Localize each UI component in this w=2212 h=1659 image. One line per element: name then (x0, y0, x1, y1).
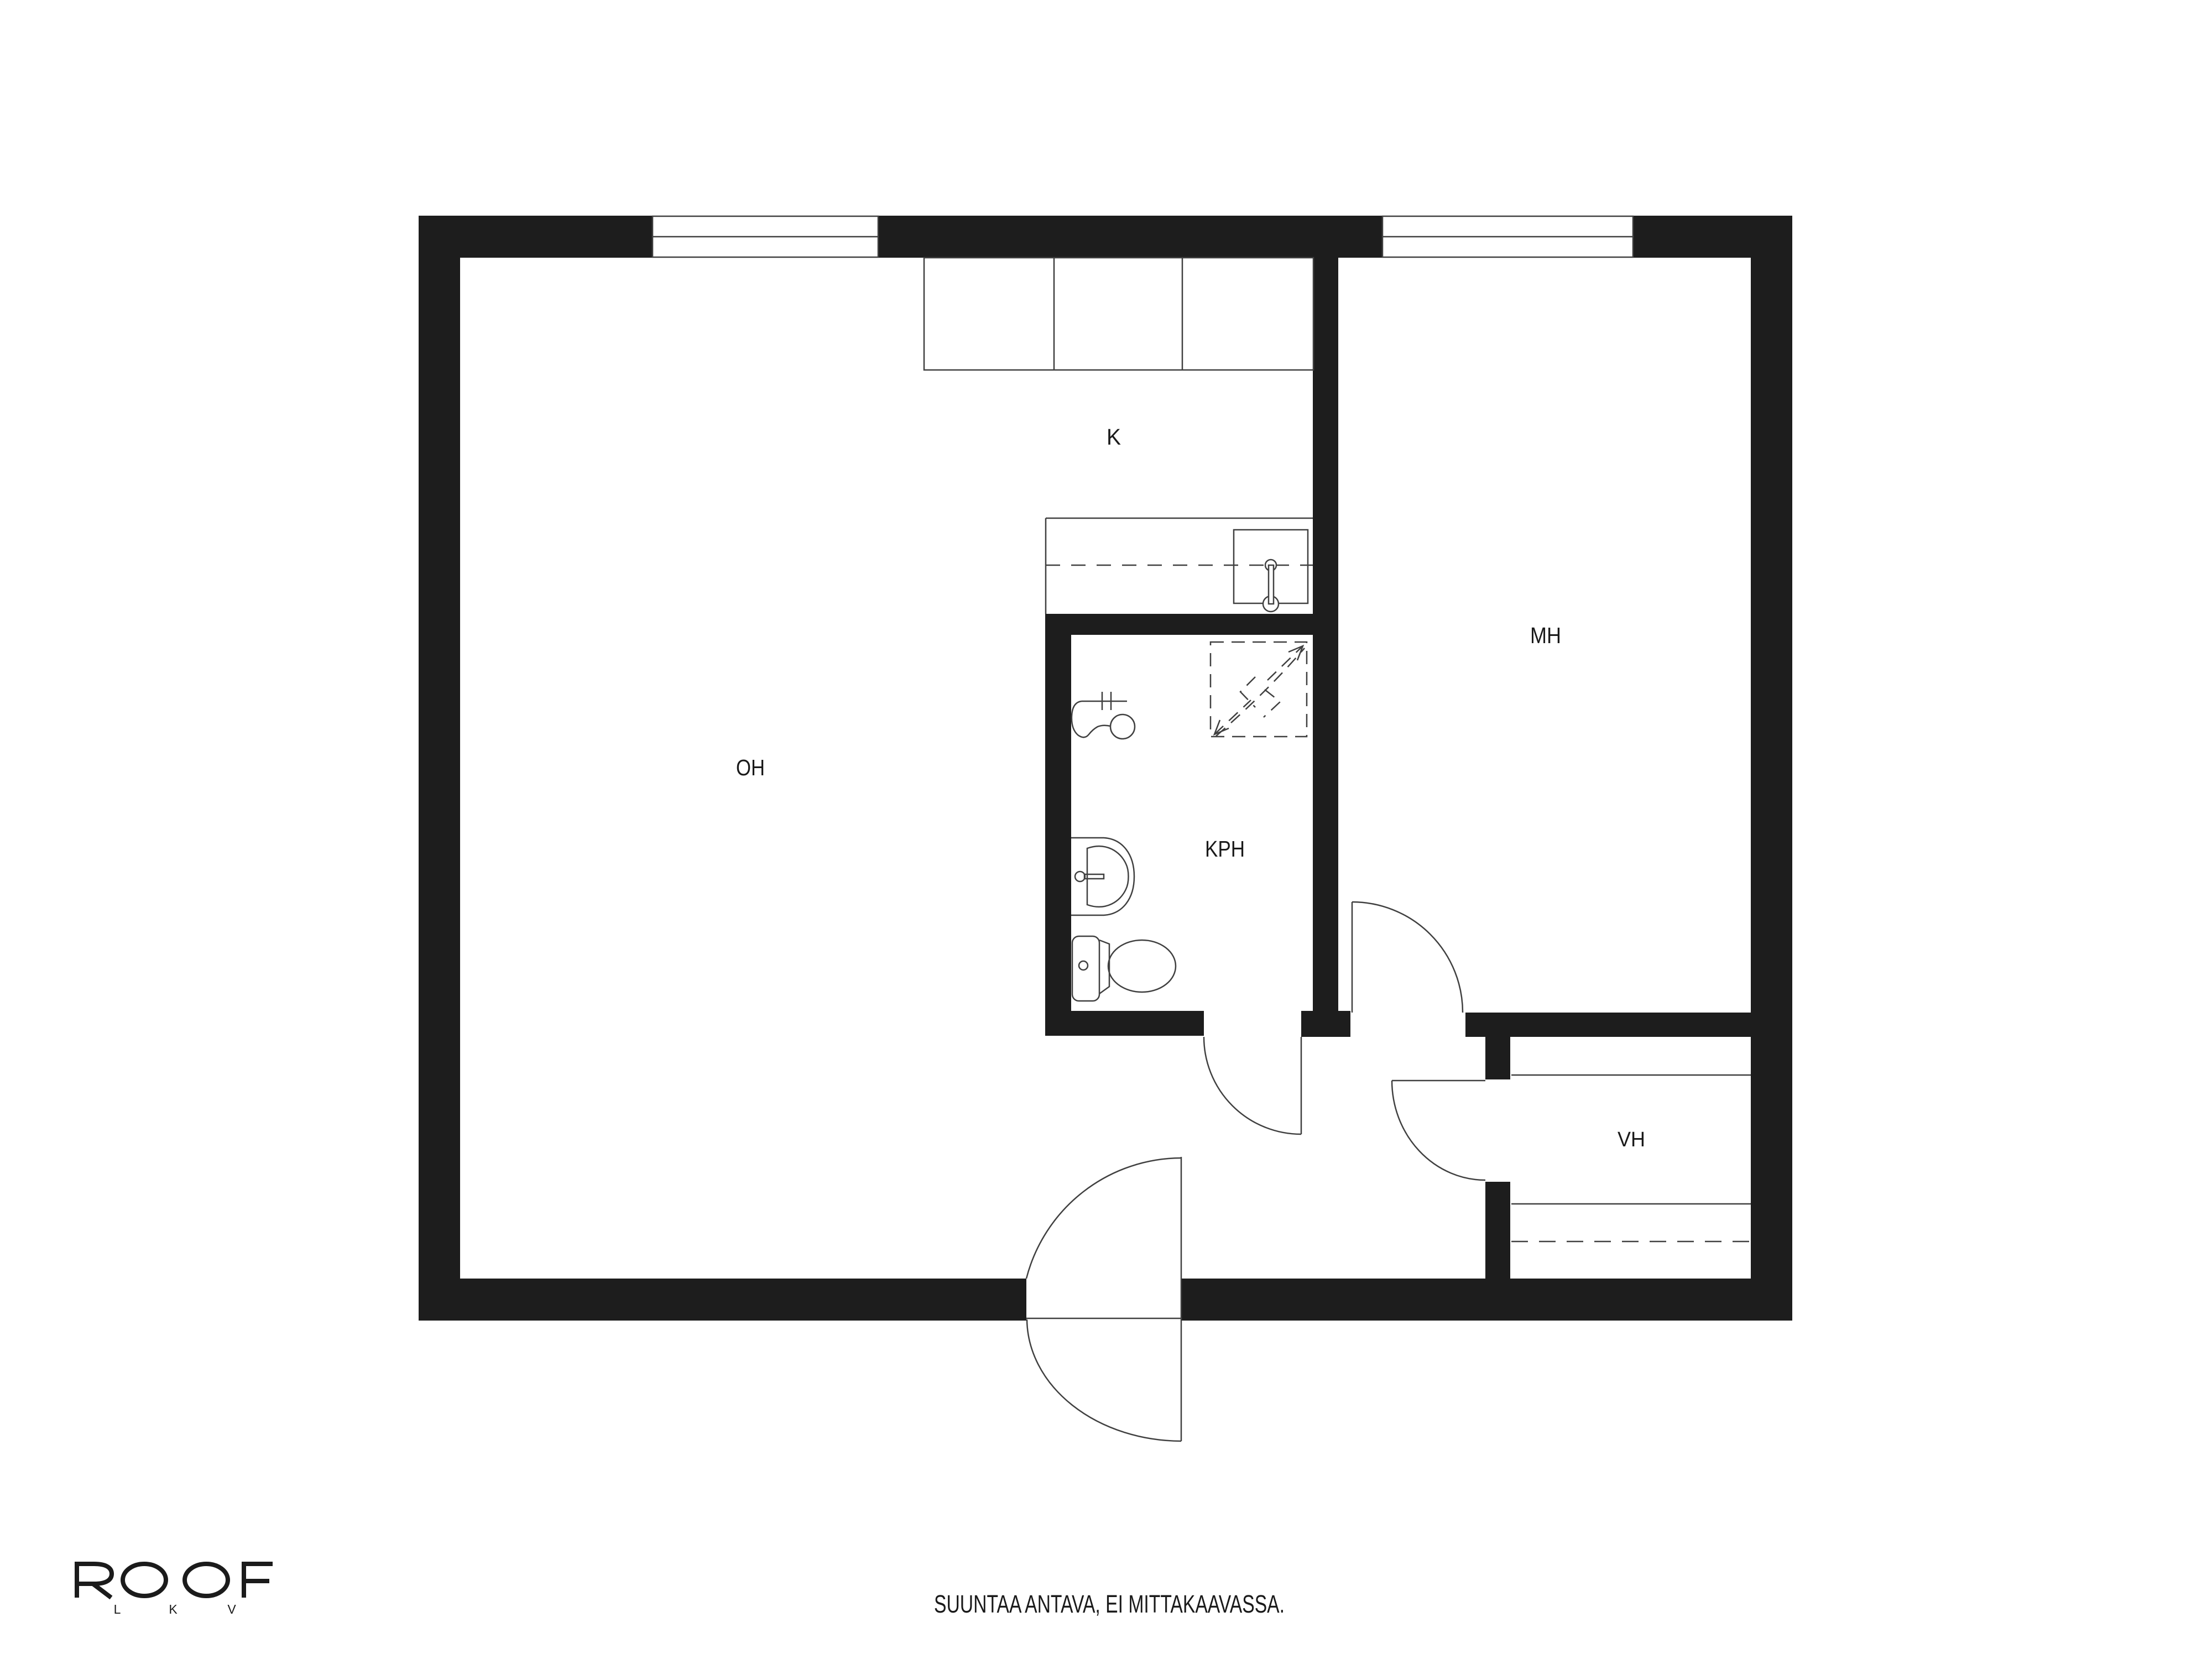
svg-text:V: V (227, 1602, 236, 1616)
svg-text:VH: VH (1618, 1128, 1645, 1151)
svg-text:L: L (114, 1602, 121, 1616)
svg-text:K: K (169, 1602, 178, 1616)
svg-text:K: K (1107, 424, 1121, 450)
svg-text:OH: OH (736, 755, 765, 780)
svg-text:KPH: KPH (1205, 836, 1245, 862)
svg-text:MH: MH (1530, 623, 1561, 648)
svg-text:SUUNTAA ANTAVA, EI MITTAKAAVAS: SUUNTAA ANTAVA, EI MITTAKAAVASSA. (934, 1590, 1285, 1618)
